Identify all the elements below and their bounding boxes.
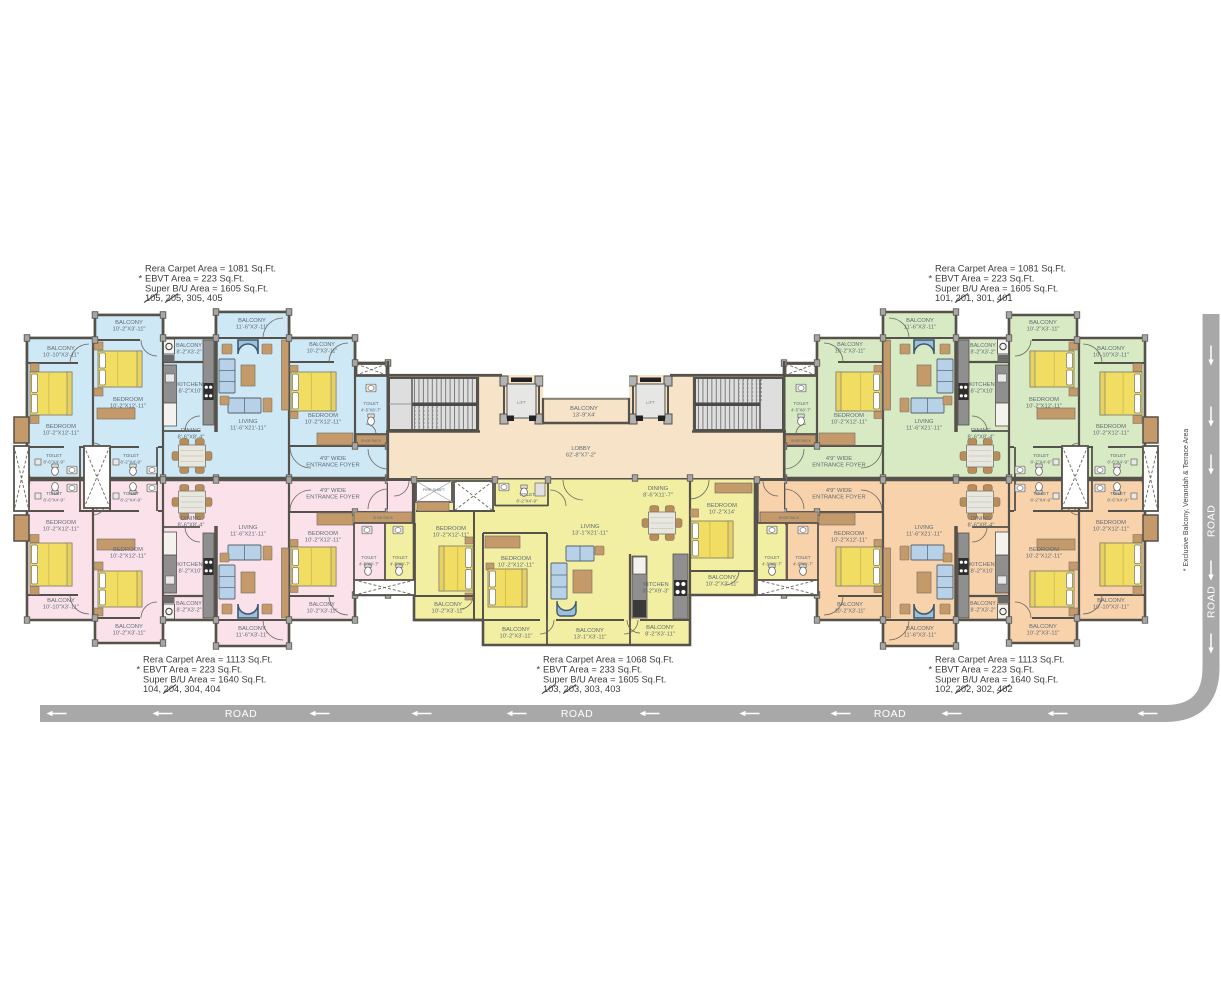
svg-text:LOBBY: LOBBY	[571, 446, 590, 452]
svg-text:BEDROOM: BEDROOM	[1096, 424, 1126, 430]
svg-text:8'-6"X8'-4": 8'-6"X8'-4"	[178, 434, 205, 440]
svg-text:BALCONY: BALCONY	[708, 575, 736, 581]
svg-text:13'-9"X4': 13'-9"X4'	[573, 412, 596, 418]
svg-text:SHOE RACK: SHOE RACK	[791, 439, 812, 443]
svg-text:TOILET: TOILET	[46, 453, 62, 458]
svg-text:BALCONY: BALCONY	[502, 627, 530, 633]
svg-text:8'-6"X4'-9": 8'-6"X4'-9"	[1107, 497, 1129, 502]
svg-text:10'-2"X12'-11": 10'-2"X12'-11"	[305, 537, 341, 543]
svg-text:8'-2"X4'-9": 8'-2"X4'-9"	[1030, 497, 1052, 502]
svg-text:SHOE RACK: SHOE RACK	[779, 516, 800, 520]
svg-text:FIRE SHAFT: FIRE SHAFT	[423, 488, 446, 492]
svg-text:8'-2"X10': 8'-2"X10'	[971, 568, 994, 574]
svg-text:Rera Carpet Area = 1113 Sq.Ft.: Rera Carpet Area = 1113 Sq.Ft.	[935, 655, 1065, 665]
svg-text:EBVT Area = 223 Sq.Ft.: EBVT Area = 223 Sq.Ft.	[935, 274, 1034, 284]
svg-text:10'-10"X3'-11": 10'-10"X3'-11"	[43, 352, 79, 358]
svg-text:10'-2"X12'-11": 10'-2"X12'-11"	[110, 553, 146, 559]
svg-text:BALCONY: BALCONY	[837, 342, 863, 348]
svg-text:8'-6"X8'-4": 8'-6"X8'-4"	[968, 522, 995, 528]
svg-text:BALCONY: BALCONY	[115, 320, 143, 326]
svg-text:KITCHEN: KITCHEN	[969, 562, 994, 568]
svg-text:BEDROOM: BEDROOM	[1096, 520, 1126, 526]
svg-text:4'9" WIDE: 4'9" WIDE	[320, 456, 346, 462]
svg-text:8'-2"X4'-9": 8'-2"X4'-9"	[516, 498, 538, 503]
svg-text:BALCONY: BALCONY	[970, 601, 996, 607]
svg-text:BALCONY: BALCONY	[970, 343, 996, 349]
svg-text:8'-6"X8'-4": 8'-6"X8'-4"	[968, 434, 995, 440]
svg-text:8'-2"X10': 8'-2"X10'	[971, 388, 994, 394]
svg-text:ROAD: ROAD	[1206, 586, 1218, 618]
svg-text:8'-2"X3'-2": 8'-2"X3'-2"	[176, 349, 201, 355]
svg-text:10'-2"X12'-11": 10'-2"X12'-11"	[43, 526, 79, 532]
svg-text:10'-2"X12'-11": 10'-2"X12'-11"	[1093, 430, 1129, 436]
svg-text:10'-2"X12'-11": 10'-2"X12'-11"	[110, 403, 146, 409]
svg-text:Super B/U Area = 1640 Sq.Ft.: Super B/U Area = 1640 Sq.Ft.	[143, 674, 266, 684]
svg-text:TOILET: TOILET	[1033, 453, 1049, 458]
svg-text:BALCONY: BALCONY	[309, 342, 335, 348]
svg-text:8'-6"X11'-7": 8'-6"X11'-7"	[643, 492, 673, 498]
svg-text:DINING: DINING	[971, 428, 992, 434]
svg-text:TOILET: TOILET	[123, 453, 139, 458]
svg-text:BALCONY: BALCONY	[646, 625, 674, 631]
svg-text:*: *	[537, 665, 541, 675]
svg-text:10'-2"X12'-11": 10'-2"X12'-11"	[1026, 553, 1062, 559]
svg-text:BALCONY: BALCONY	[1097, 346, 1125, 352]
svg-text:10'-2"X14': 10'-2"X14'	[709, 509, 735, 515]
svg-text:10'-2"X3'-11": 10'-2"X3'-11"	[1027, 326, 1060, 332]
svg-text:4'-5"X8'-7": 4'-5"X8'-7"	[791, 407, 811, 412]
svg-text:10'-2"X3'-11": 10'-2"X3'-11"	[113, 630, 146, 636]
svg-text:8'-2"X3'-2": 8'-2"X3'-2"	[176, 607, 201, 613]
svg-text:*: *	[139, 274, 143, 284]
svg-text:BEDROOM: BEDROOM	[707, 503, 737, 509]
svg-text:105, 205, 305, 405: 105, 205, 305, 405	[145, 293, 223, 303]
svg-text:*: *	[137, 665, 141, 675]
svg-text:8'-2"X4'-9": 8'-2"X4'-9"	[1030, 459, 1052, 464]
svg-text:10'-2"X3'-11": 10'-2"X3'-11"	[1027, 630, 1060, 636]
svg-text:BEDROOM: BEDROOM	[308, 531, 338, 537]
svg-text:10'-2"X12'-11": 10'-2"X12'-11"	[305, 419, 341, 425]
svg-text:TOILET: TOILET	[1110, 491, 1126, 496]
svg-text:4'-5"X8'-7": 4'-5"X8'-7"	[359, 561, 379, 566]
svg-text:DINING: DINING	[181, 516, 202, 522]
svg-text:Rera Carpet Area = 1081 Sq.Ft.: Rera Carpet Area = 1081 Sq.Ft.	[935, 264, 1066, 274]
svg-text:BEDROOM: BEDROOM	[834, 413, 864, 419]
svg-text:10'-10"X3'-11": 10'-10"X3'-11"	[1093, 352, 1129, 358]
svg-text:TOILET: TOILET	[393, 555, 408, 560]
svg-text:BALCONY: BALCONY	[309, 602, 335, 608]
svg-text:BALCONY: BALCONY	[906, 626, 934, 632]
svg-text:LIFT: LIFT	[646, 400, 656, 405]
svg-text:EBVT Area = 233 Sq.Ft.: EBVT Area = 233 Sq.Ft.	[543, 665, 642, 675]
svg-text:ENTRANCE FOYER: ENTRANCE FOYER	[812, 494, 865, 500]
svg-text:10'-2"X12'-11": 10'-2"X12'-11"	[498, 562, 534, 568]
svg-text:TOILET: TOILET	[765, 555, 780, 560]
svg-text:8'-2"X4'-9": 8'-2"X4'-9"	[120, 497, 142, 502]
svg-text:BEDROOM: BEDROOM	[46, 424, 76, 430]
svg-text:8'-2"X3'-2": 8'-2"X3'-2"	[970, 349, 995, 355]
svg-text:LIFT: LIFT	[517, 400, 527, 405]
svg-text:Super B/U Area = 1605 Sq.Ft.: Super B/U Area = 1605 Sq.Ft.	[935, 283, 1058, 293]
svg-text:BALCONY: BALCONY	[176, 343, 202, 349]
svg-text:* Exclusive Balcony, Verandah: * Exclusive Balcony, Verandah & Terrace …	[1183, 429, 1190, 572]
svg-text:BALCONY: BALCONY	[115, 624, 143, 630]
svg-text:BALCONY: BALCONY	[906, 318, 934, 324]
svg-text:11'-6"X3'-11": 11'-6"X3'-11"	[236, 632, 269, 638]
svg-text:BALCONY: BALCONY	[1029, 624, 1057, 630]
svg-text:4'9" WIDE: 4'9" WIDE	[826, 456, 852, 462]
svg-text:BALCONY: BALCONY	[47, 598, 75, 604]
svg-text:BEDROOM: BEDROOM	[1029, 397, 1059, 403]
svg-text:13'-1"X21'-11": 13'-1"X21'-11"	[572, 530, 608, 536]
svg-text:13'-1"X3'-11": 13'-1"X3'-11"	[574, 634, 607, 640]
svg-text:BEDROOM: BEDROOM	[113, 547, 143, 553]
svg-text:Rera Carpet Area = 1081 Sq.Ft.: Rera Carpet Area = 1081 Sq.Ft.	[145, 264, 276, 274]
svg-text:BEDROOM: BEDROOM	[46, 520, 76, 526]
svg-text:10'-2"X3'-11": 10'-2"X3'-11"	[307, 608, 338, 614]
svg-text:BALCONY: BALCONY	[238, 626, 266, 632]
svg-text:8'-2"X4'-9": 8'-2"X4'-9"	[120, 459, 142, 464]
svg-text:4'9" WIDE: 4'9" WIDE	[826, 488, 852, 494]
svg-text:LIVING: LIVING	[580, 524, 599, 530]
svg-text:11'-6"X3'-11": 11'-6"X3'-11"	[904, 324, 937, 330]
svg-text:10'-2"X12'-11": 10'-2"X12'-11"	[43, 430, 79, 436]
svg-text:104, 204, 304, 404: 104, 204, 304, 404	[143, 684, 221, 694]
svg-text:DINING: DINING	[648, 486, 669, 492]
svg-text:10'-2"X3'-11": 10'-2"X3'-11"	[307, 348, 338, 354]
svg-text:103, 203, 303, 403: 103, 203, 303, 403	[543, 684, 621, 694]
svg-text:8'-6"X8'-4": 8'-6"X8'-4"	[178, 522, 205, 528]
svg-text:*: *	[929, 665, 933, 675]
svg-text:TOILET: TOILET	[1110, 453, 1126, 458]
svg-text:EBVT Area = 223 Sq.Ft.: EBVT Area = 223 Sq.Ft.	[143, 665, 242, 675]
svg-text:8'-6"X4'-9": 8'-6"X4'-9"	[43, 497, 65, 502]
svg-text:Super B/U Area = 1605 Sq.Ft.: Super B/U Area = 1605 Sq.Ft.	[145, 283, 268, 293]
svg-text:10'-2"X3'-11": 10'-2"X3'-11"	[835, 348, 866, 354]
svg-text:BEDROOM: BEDROOM	[834, 531, 864, 537]
svg-text:SHOE RACK: SHOE RACK	[361, 439, 382, 443]
svg-text:TOILET: TOILET	[364, 401, 379, 406]
svg-text:10'-2"X3'-11": 10'-2"X3'-11"	[113, 326, 146, 332]
svg-text:Rera Carpet Area = 1113 Sq.Ft.: Rera Carpet Area = 1113 Sq.Ft.	[143, 655, 273, 665]
svg-text:10'-10"X3'-11": 10'-10"X3'-11"	[1093, 604, 1129, 610]
svg-text:TOILET: TOILET	[794, 401, 809, 406]
svg-text:EBVT Area = 223 Sq.Ft.: EBVT Area = 223 Sq.Ft.	[935, 665, 1034, 675]
svg-text:Super B/U Area = 1605 Sq.Ft.: Super B/U Area = 1605 Sq.Ft.	[543, 674, 666, 684]
svg-text:11'-6"X21'-11": 11'-6"X21'-11"	[906, 425, 942, 431]
svg-text:4'-5"X8'-7": 4'-5"X8'-7"	[793, 561, 813, 566]
svg-text:BALCONY: BALCONY	[576, 628, 604, 634]
svg-text:BEDROOM: BEDROOM	[436, 526, 466, 532]
svg-text:10'-2"X3'-11": 10'-2"X3'-11"	[706, 581, 739, 587]
svg-text:11'-6"X3'-11": 11'-6"X3'-11"	[236, 324, 269, 330]
svg-text:TOILET: TOILET	[46, 491, 62, 496]
svg-text:10'-2"X12'-11": 10'-2"X12'-11"	[831, 537, 867, 543]
svg-text:TOILET: TOILET	[1033, 491, 1049, 496]
svg-text:10'-2"X12'-11": 10'-2"X12'-11"	[1093, 526, 1129, 532]
svg-text:4'9" WIDE: 4'9" WIDE	[320, 488, 346, 494]
svg-text:8'-2"X3'-2": 8'-2"X3'-2"	[970, 607, 995, 613]
svg-text:BEDROOM: BEDROOM	[501, 556, 531, 562]
svg-text:DINING: DINING	[181, 428, 202, 434]
svg-text:4'-5"X8'-7": 4'-5"X8'-7"	[390, 561, 410, 566]
svg-text:4'-5"X8'-7": 4'-5"X8'-7"	[762, 561, 782, 566]
svg-text:*: *	[929, 274, 933, 284]
svg-text:101, 201, 301, 401: 101, 201, 301, 401	[935, 293, 1013, 303]
svg-text:11'-6"X21'-11": 11'-6"X21'-11"	[230, 425, 266, 431]
svg-text:BALCONY: BALCONY	[176, 601, 202, 607]
svg-text:10'-2"X12'-11": 10'-2"X12'-11"	[1026, 403, 1062, 409]
svg-text:8'-2"X3'-11": 8'-2"X3'-11"	[645, 631, 675, 637]
svg-text:11'-6"X21'-11": 11'-6"X21'-11"	[230, 531, 266, 537]
svg-text:LIVING: LIVING	[914, 419, 933, 425]
svg-text:LIVING: LIVING	[914, 525, 933, 531]
svg-text:102, 202, 302, 402: 102, 202, 302, 402	[935, 684, 1013, 694]
svg-text:Super B/U Area = 1640 Sq.Ft.: Super B/U Area = 1640 Sq.Ft.	[935, 674, 1058, 684]
svg-text:ENTRANCE FOYER: ENTRANCE FOYER	[306, 462, 359, 468]
svg-text:ENTRANCE FOYER: ENTRANCE FOYER	[306, 494, 359, 500]
svg-text:KITCHEN: KITCHEN	[177, 382, 202, 388]
svg-text:BALCONY: BALCONY	[570, 406, 598, 412]
svg-text:BEDROOM: BEDROOM	[1029, 547, 1059, 553]
svg-text:BALCONY: BALCONY	[1097, 598, 1125, 604]
svg-text:TOILET: TOILET	[796, 555, 811, 560]
svg-text:10'-2"X12'-11": 10'-2"X12'-11"	[433, 532, 469, 538]
svg-text:KITCHEN: KITCHEN	[177, 562, 202, 568]
svg-text:10'-2"X12'-11": 10'-2"X12'-11"	[831, 419, 867, 425]
svg-text:TOILET: TOILET	[123, 491, 139, 496]
svg-text:10'-2"X3'-11": 10'-2"X3'-11"	[500, 633, 533, 639]
svg-text:KITCHEN: KITCHEN	[969, 382, 994, 388]
svg-text:BEDROOM: BEDROOM	[308, 413, 338, 419]
svg-text:BALCONY: BALCONY	[434, 602, 462, 608]
svg-text:11'-6"X3'-11": 11'-6"X3'-11"	[904, 632, 937, 638]
svg-text:LIVING: LIVING	[238, 419, 257, 425]
svg-text:BALCONY: BALCONY	[238, 318, 266, 324]
svg-text:SHOE RACK: SHOE RACK	[373, 516, 394, 520]
svg-text:10'-2"X3'-11": 10'-2"X3'-11"	[835, 608, 866, 614]
svg-text:ENTRANCE FOYER: ENTRANCE FOYER	[812, 462, 865, 468]
svg-text:8'-6"X4'-9": 8'-6"X4'-9"	[43, 459, 65, 464]
svg-text:BALCONY: BALCONY	[47, 346, 75, 352]
svg-text:BALCONY: BALCONY	[1029, 320, 1057, 326]
svg-text:4'-5"X8'-7": 4'-5"X8'-7"	[361, 407, 381, 412]
svg-text:ROAD: ROAD	[1206, 505, 1218, 537]
svg-text:8'-6"X4'-9": 8'-6"X4'-9"	[1107, 459, 1129, 464]
svg-text:62'-8"X7'-2": 62'-8"X7'-2"	[566, 452, 596, 458]
svg-text:BEDROOM: BEDROOM	[113, 397, 143, 403]
svg-text:EBVT Area = 223 Sq.Ft.: EBVT Area = 223 Sq.Ft.	[145, 274, 244, 284]
svg-text:DINING: DINING	[971, 516, 992, 522]
svg-text:10'-10"X3'-11": 10'-10"X3'-11"	[43, 604, 79, 610]
svg-text:BALCONY: BALCONY	[837, 602, 863, 608]
svg-text:8'-2"X9'-3": 8'-2"X9'-3"	[643, 588, 670, 594]
svg-text:8'-2"X10': 8'-2"X10'	[179, 388, 202, 394]
svg-text:10'-2"X3'-11": 10'-2"X3'-11"	[432, 608, 465, 614]
svg-text:TOILET: TOILET	[519, 492, 535, 497]
svg-text:TOILET: TOILET	[362, 555, 377, 560]
svg-text:LIVING: LIVING	[238, 525, 257, 531]
svg-text:ROAD: ROAD	[225, 708, 257, 720]
svg-text:ROAD: ROAD	[874, 708, 906, 720]
svg-text:Rera Carpet Area = 1068 Sq.Ft.: Rera Carpet Area = 1068 Sq.Ft.	[543, 655, 674, 665]
svg-text:ROAD: ROAD	[561, 708, 593, 720]
svg-text:8'-2"X10': 8'-2"X10'	[179, 568, 202, 574]
svg-text:11'-6"X21'-11": 11'-6"X21'-11"	[906, 531, 942, 537]
svg-text:KITCHEN: KITCHEN	[643, 582, 668, 588]
